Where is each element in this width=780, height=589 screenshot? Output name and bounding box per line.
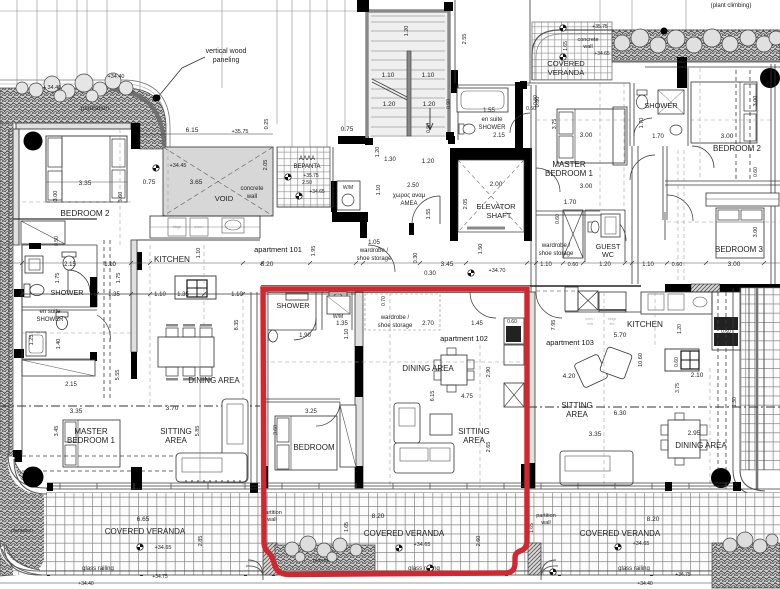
- svg-text:3.70: 3.70: [166, 405, 179, 412]
- svg-text:7.95: 7.95: [551, 320, 557, 331]
- svg-text:3.45: 3.45: [54, 426, 60, 437]
- svg-text:BEDROOM 2: BEDROOM 2: [60, 209, 110, 218]
- svg-text:BEDROOM 3: BEDROOM 3: [715, 245, 764, 254]
- svg-text:2.90: 2.90: [486, 367, 492, 378]
- svg-text:apartment 102: apartment 102: [440, 334, 488, 343]
- svg-text:+ 34.40: + 34.40: [43, 85, 62, 91]
- svg-text:0.90: 0.90: [446, 99, 452, 109]
- svg-text:f/m: f/m: [610, 322, 615, 326]
- svg-text:BEDROOM 1: BEDROOM 1: [67, 436, 116, 445]
- svg-text:DINING AREA: DINING AREA: [402, 364, 454, 373]
- svg-text:SHOWER: SHOWER: [644, 101, 677, 110]
- svg-text:MASTER: MASTER: [552, 160, 586, 169]
- svg-text:2.65: 2.65: [486, 442, 492, 453]
- svg-text:COVERED: COVERED: [547, 59, 585, 68]
- svg-text:concrete: concrete: [240, 186, 264, 192]
- svg-text:0.75: 0.75: [341, 126, 354, 133]
- svg-text:wall: wall: [540, 520, 550, 526]
- svg-text:1.40: 1.40: [56, 339, 62, 350]
- svg-text:10.60: 10.60: [638, 353, 644, 367]
- svg-text:2.00: 2.00: [490, 181, 503, 188]
- svg-text:en suite: en suite: [39, 309, 61, 315]
- svg-text:3.25: 3.25: [305, 409, 317, 415]
- svg-text:oven /: oven /: [194, 225, 204, 229]
- svg-text:+34.65: +34.65: [309, 189, 325, 195]
- svg-text:0.25: 0.25: [264, 119, 270, 130]
- svg-text:SITTING: SITTING: [458, 427, 490, 436]
- svg-text:2.70: 2.70: [422, 321, 434, 327]
- svg-text:3.35: 3.35: [589, 431, 602, 438]
- svg-text:1.25: 1.25: [29, 335, 35, 346]
- svg-text:plantation: plantation: [81, 105, 110, 112]
- svg-text:SHAFT: SHAFT: [487, 211, 512, 220]
- svg-text:8.20: 8.20: [647, 516, 660, 523]
- svg-text:0.50: 0.50: [54, 236, 60, 246]
- svg-text:COVERED VERANDA: COVERED VERANDA: [364, 529, 445, 538]
- svg-text:1.50: 1.50: [478, 244, 484, 255]
- svg-text:wardrobe /: wardrobe /: [541, 243, 571, 249]
- svg-text:plantation: plantation: [11, 528, 33, 534]
- svg-text:3.60: 3.60: [273, 425, 279, 435]
- svg-text:SHOWER: SHOWER: [37, 317, 65, 323]
- svg-text:1.95: 1.95: [311, 246, 317, 257]
- svg-text:BEDROOM 1: BEDROOM 1: [545, 169, 594, 178]
- svg-text:1.20: 1.20: [404, 26, 410, 37]
- svg-text:+34.65: +34.65: [594, 51, 610, 57]
- svg-text:fridge: fridge: [173, 225, 182, 229]
- svg-text:1.20: 1.20: [423, 101, 436, 108]
- svg-text:0.30: 0.30: [424, 271, 436, 277]
- svg-text:0.60: 0.60: [507, 319, 517, 325]
- svg-text:1.75: 1.75: [55, 273, 61, 284]
- svg-text:6.30: 6.30: [614, 410, 627, 417]
- svg-text:0.60: 0.60: [555, 214, 561, 224]
- svg-text:3.00: 3.00: [728, 261, 741, 268]
- svg-text:AREA: AREA: [165, 436, 187, 445]
- svg-text:5.70: 5.70: [614, 332, 627, 339]
- svg-text:partition: partition: [536, 513, 556, 519]
- svg-text:ΑΜΕΑ: ΑΜΕΑ: [400, 201, 417, 207]
- svg-text:2.85: 2.85: [198, 536, 204, 547]
- svg-text:2.05: 2.05: [463, 199, 469, 210]
- svg-text:1.55: 1.55: [426, 209, 432, 220]
- svg-text:AREA: AREA: [463, 436, 485, 445]
- svg-text:wall: wall: [246, 194, 257, 200]
- svg-text:3.45: 3.45: [441, 261, 454, 268]
- svg-text:2.60: 2.60: [476, 536, 482, 547]
- svg-text:VOID: VOID: [215, 194, 234, 203]
- svg-text:1.35: 1.35: [177, 292, 189, 298]
- svg-text:BEDROOM 2: BEDROOM 2: [713, 144, 762, 153]
- svg-text:+35.75: +35.75: [592, 24, 608, 30]
- svg-text:+34.70: +34.70: [489, 268, 506, 274]
- svg-text:1.65: 1.65: [529, 523, 535, 533]
- svg-text:shoe storage: shoe storage: [539, 251, 574, 257]
- svg-text:1.65: 1.65: [344, 522, 350, 532]
- svg-text:3.65: 3.65: [190, 179, 203, 186]
- svg-text:W/M: W/M: [333, 314, 343, 320]
- svg-text:+34.75: +34.75: [152, 574, 168, 580]
- svg-text:apartment 101: apartment 101: [254, 245, 302, 254]
- svg-text:fridge: fridge: [608, 317, 617, 321]
- svg-text:SHOWER: SHOWER: [479, 125, 507, 131]
- svg-text:1.10: 1.10: [382, 72, 395, 79]
- svg-text:+34.40: +34.40: [108, 74, 125, 80]
- svg-text:8.35: 8.35: [234, 320, 240, 331]
- svg-text:+35.75: +35.75: [303, 173, 319, 179]
- svg-text:concrete: concrete: [577, 37, 598, 43]
- svg-text:3.00: 3.00: [53, 191, 59, 202]
- svg-text:glass railing: glass railing: [618, 566, 650, 572]
- svg-text:2.10: 2.10: [691, 372, 704, 379]
- svg-text:ELEVATOR: ELEVATOR: [476, 202, 516, 211]
- svg-text:ΑΛΛΑ: ΑΛΛΑ: [299, 156, 315, 162]
- svg-text:5.55: 5.55: [115, 370, 121, 381]
- svg-text:DINING AREA: DINING AREA: [188, 376, 240, 385]
- svg-text:2.15: 2.15: [493, 133, 505, 139]
- svg-text:wall: wall: [266, 517, 276, 523]
- svg-text:+34.45: +34.45: [170, 163, 187, 169]
- svg-text:1.10: 1.10: [376, 185, 382, 196]
- svg-text:8.20: 8.20: [372, 513, 385, 520]
- svg-text:1.75: 1.75: [116, 273, 122, 284]
- svg-text:1.35: 1.35: [108, 292, 120, 298]
- svg-text:(plant climbing): (plant climbing): [711, 3, 752, 9]
- svg-text:3.00: 3.00: [753, 96, 759, 107]
- svg-text:wardrobe /: wardrobe /: [359, 248, 389, 254]
- svg-text:+34.40: +34.40: [637, 581, 653, 587]
- svg-text:+34.40: +34.40: [78, 581, 94, 587]
- svg-text:3.00: 3.00: [580, 132, 593, 139]
- svg-text:ΒΕΡΑΝΤΑ: ΒΕΡΑΝΤΑ: [293, 164, 320, 170]
- svg-text:3.00: 3.00: [721, 133, 734, 140]
- svg-text:wardrobe /: wardrobe /: [380, 315, 410, 321]
- svg-text:+34.65: +34.65: [155, 545, 172, 551]
- svg-text:6.15: 6.15: [430, 391, 436, 402]
- svg-text:W/M: W/M: [343, 185, 353, 191]
- svg-text:1.30: 1.30: [384, 157, 396, 163]
- svg-text:1.70: 1.70: [652, 134, 664, 140]
- svg-text:1.10: 1.10: [422, 72, 435, 79]
- svg-text:en suite: en suite: [481, 117, 503, 123]
- svg-text:COVERED VERANDA: COVERED VERANDA: [580, 529, 661, 538]
- svg-text:DINING AREA: DINING AREA: [675, 441, 727, 450]
- svg-text:3.00: 3.00: [753, 227, 759, 238]
- svg-text:1.20: 1.20: [383, 101, 396, 108]
- svg-text:1.65: 1.65: [563, 41, 569, 51]
- svg-text:1.55: 1.55: [483, 108, 495, 114]
- svg-text:2.15: 2.15: [65, 382, 77, 388]
- svg-text:2.55: 2.55: [462, 34, 468, 45]
- svg-text:0.90: 0.90: [426, 123, 432, 133]
- svg-text:1.10: 1.10: [344, 329, 350, 340]
- svg-text:SHOWER: SHOWER: [276, 301, 309, 310]
- svg-text:+34.65: +34.65: [414, 542, 431, 548]
- svg-text:BEDROOM: BEDROOM: [293, 443, 335, 452]
- svg-text:2.50: 2.50: [407, 183, 419, 189]
- svg-text:1.20: 1.20: [375, 147, 381, 158]
- svg-text:1.35: 1.35: [336, 321, 348, 327]
- svg-text:4.20: 4.20: [563, 373, 576, 380]
- svg-text:SITTING: SITTING: [160, 427, 192, 436]
- svg-text:glass railing: glass railing: [82, 566, 114, 572]
- svg-text:0.70: 0.70: [381, 296, 387, 306]
- svg-text:1.10: 1.10: [196, 248, 202, 259]
- svg-text:shoe storage: shoe storage: [378, 323, 413, 329]
- svg-text:2.50: 2.50: [302, 180, 312, 186]
- svg-text:MASTER: MASTER: [74, 427, 108, 436]
- svg-text:COVERED VERANDA: COVERED VERANDA: [105, 527, 186, 536]
- svg-text:apartment 103: apartment 103: [546, 338, 594, 347]
- svg-text:VERANDA: VERANDA: [548, 68, 586, 77]
- svg-text:4.75: 4.75: [461, 394, 473, 400]
- svg-text:3.35: 3.35: [70, 408, 83, 415]
- svg-text:1.20: 1.20: [677, 324, 683, 334]
- svg-text:2.05: 2.05: [263, 160, 269, 171]
- svg-text:3.00: 3.00: [580, 183, 593, 190]
- svg-text:3.35: 3.35: [79, 180, 92, 187]
- svg-text:paneling: paneling: [213, 57, 240, 64]
- svg-text:1.20: 1.20: [422, 158, 435, 165]
- svg-text:KITCHEN: KITCHEN: [627, 320, 663, 329]
- svg-text:1.70: 1.70: [564, 199, 577, 206]
- svg-text:AREA: AREA: [566, 410, 588, 419]
- svg-text:KITCHEN: KITCHEN: [154, 255, 190, 264]
- svg-text:wall: wall: [582, 44, 592, 50]
- svg-text:shoe storage: shoe storage: [357, 256, 392, 262]
- svg-text:6.15: 6.15: [186, 127, 199, 134]
- svg-text:+34.75: +34.75: [675, 572, 691, 578]
- svg-text:2.95: 2.95: [688, 430, 701, 437]
- svg-text:WC: WC: [602, 250, 614, 259]
- svg-text:SITTING: SITTING: [561, 401, 593, 410]
- svg-text:0.75: 0.75: [143, 179, 156, 186]
- svg-text:0.30: 0.30: [413, 253, 419, 264]
- svg-text:3.60: 3.60: [118, 192, 124, 203]
- svg-text:6.65: 6.65: [137, 516, 150, 523]
- svg-text:0.60: 0.60: [753, 167, 759, 177]
- svg-text:oven /: oven /: [585, 317, 595, 321]
- svg-text:χωρος αναμ: χωρος αναμ: [393, 193, 426, 199]
- svg-text:1.45: 1.45: [471, 321, 483, 327]
- svg-text:vertical wood: vertical wood: [206, 48, 247, 55]
- svg-text:+34.65: +34.65: [633, 541, 650, 547]
- svg-text:0.60: 0.60: [674, 357, 680, 367]
- svg-text:m/w: m/w: [587, 322, 594, 326]
- svg-text:1.10: 1.10: [154, 292, 166, 298]
- svg-text:3.75: 3.75: [675, 383, 681, 393]
- svg-text:SHOWER: SHOWER: [50, 288, 83, 297]
